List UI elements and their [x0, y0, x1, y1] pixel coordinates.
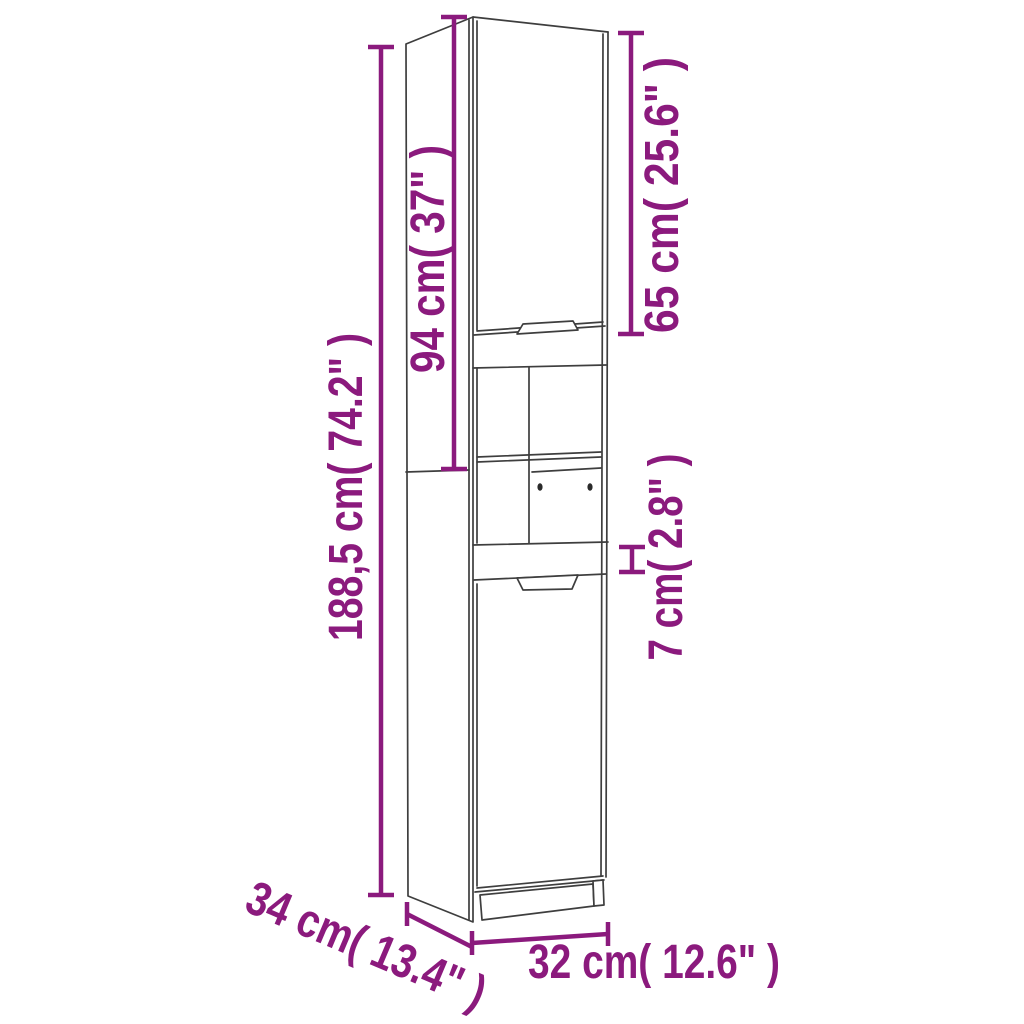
upper-unit-height-label: 94 cm( 37" )	[402, 145, 455, 373]
cabinet-right-outer-edge	[606, 32, 608, 877]
cabinet-right-inner-edge	[601, 34, 603, 876]
lower-door-handle	[517, 575, 578, 590]
shelf-section-bottom-edge	[473, 542, 608, 545]
upper-door-height-label: 65 cm( 25.6" )	[636, 57, 689, 333]
dowel-hole-right	[587, 483, 592, 491]
shelf-board-lines	[477, 452, 601, 462]
upper-frame-band-bottom-edge	[473, 365, 606, 368]
width-label: 32 cm( 12.6" )	[528, 936, 780, 989]
total-height-label: 188,5 cm( 74.2" )	[320, 333, 373, 641]
middle-band-height-label: 7 cm( 2.8" )	[640, 454, 693, 661]
right-foot	[593, 880, 604, 906]
dimension-labels: 188,5 cm( 74.2" ) 94 cm( 37" ) 65 cm( 25…	[238, 57, 780, 1020]
shelf-back-panel-edge	[532, 468, 601, 472]
upper-door-handle	[517, 321, 578, 334]
dowel-hole-left	[537, 483, 542, 491]
cabinet-top-edge	[473, 17, 608, 32]
dimension-diagram: 188,5 cm( 74.2" ) 94 cm( 37" ) 65 cm( 25…	[0, 0, 1024, 1024]
product-dimension-image: 188,5 cm( 74.2" ) 94 cm( 37" ) 65 cm( 25…	[0, 0, 1024, 1024]
